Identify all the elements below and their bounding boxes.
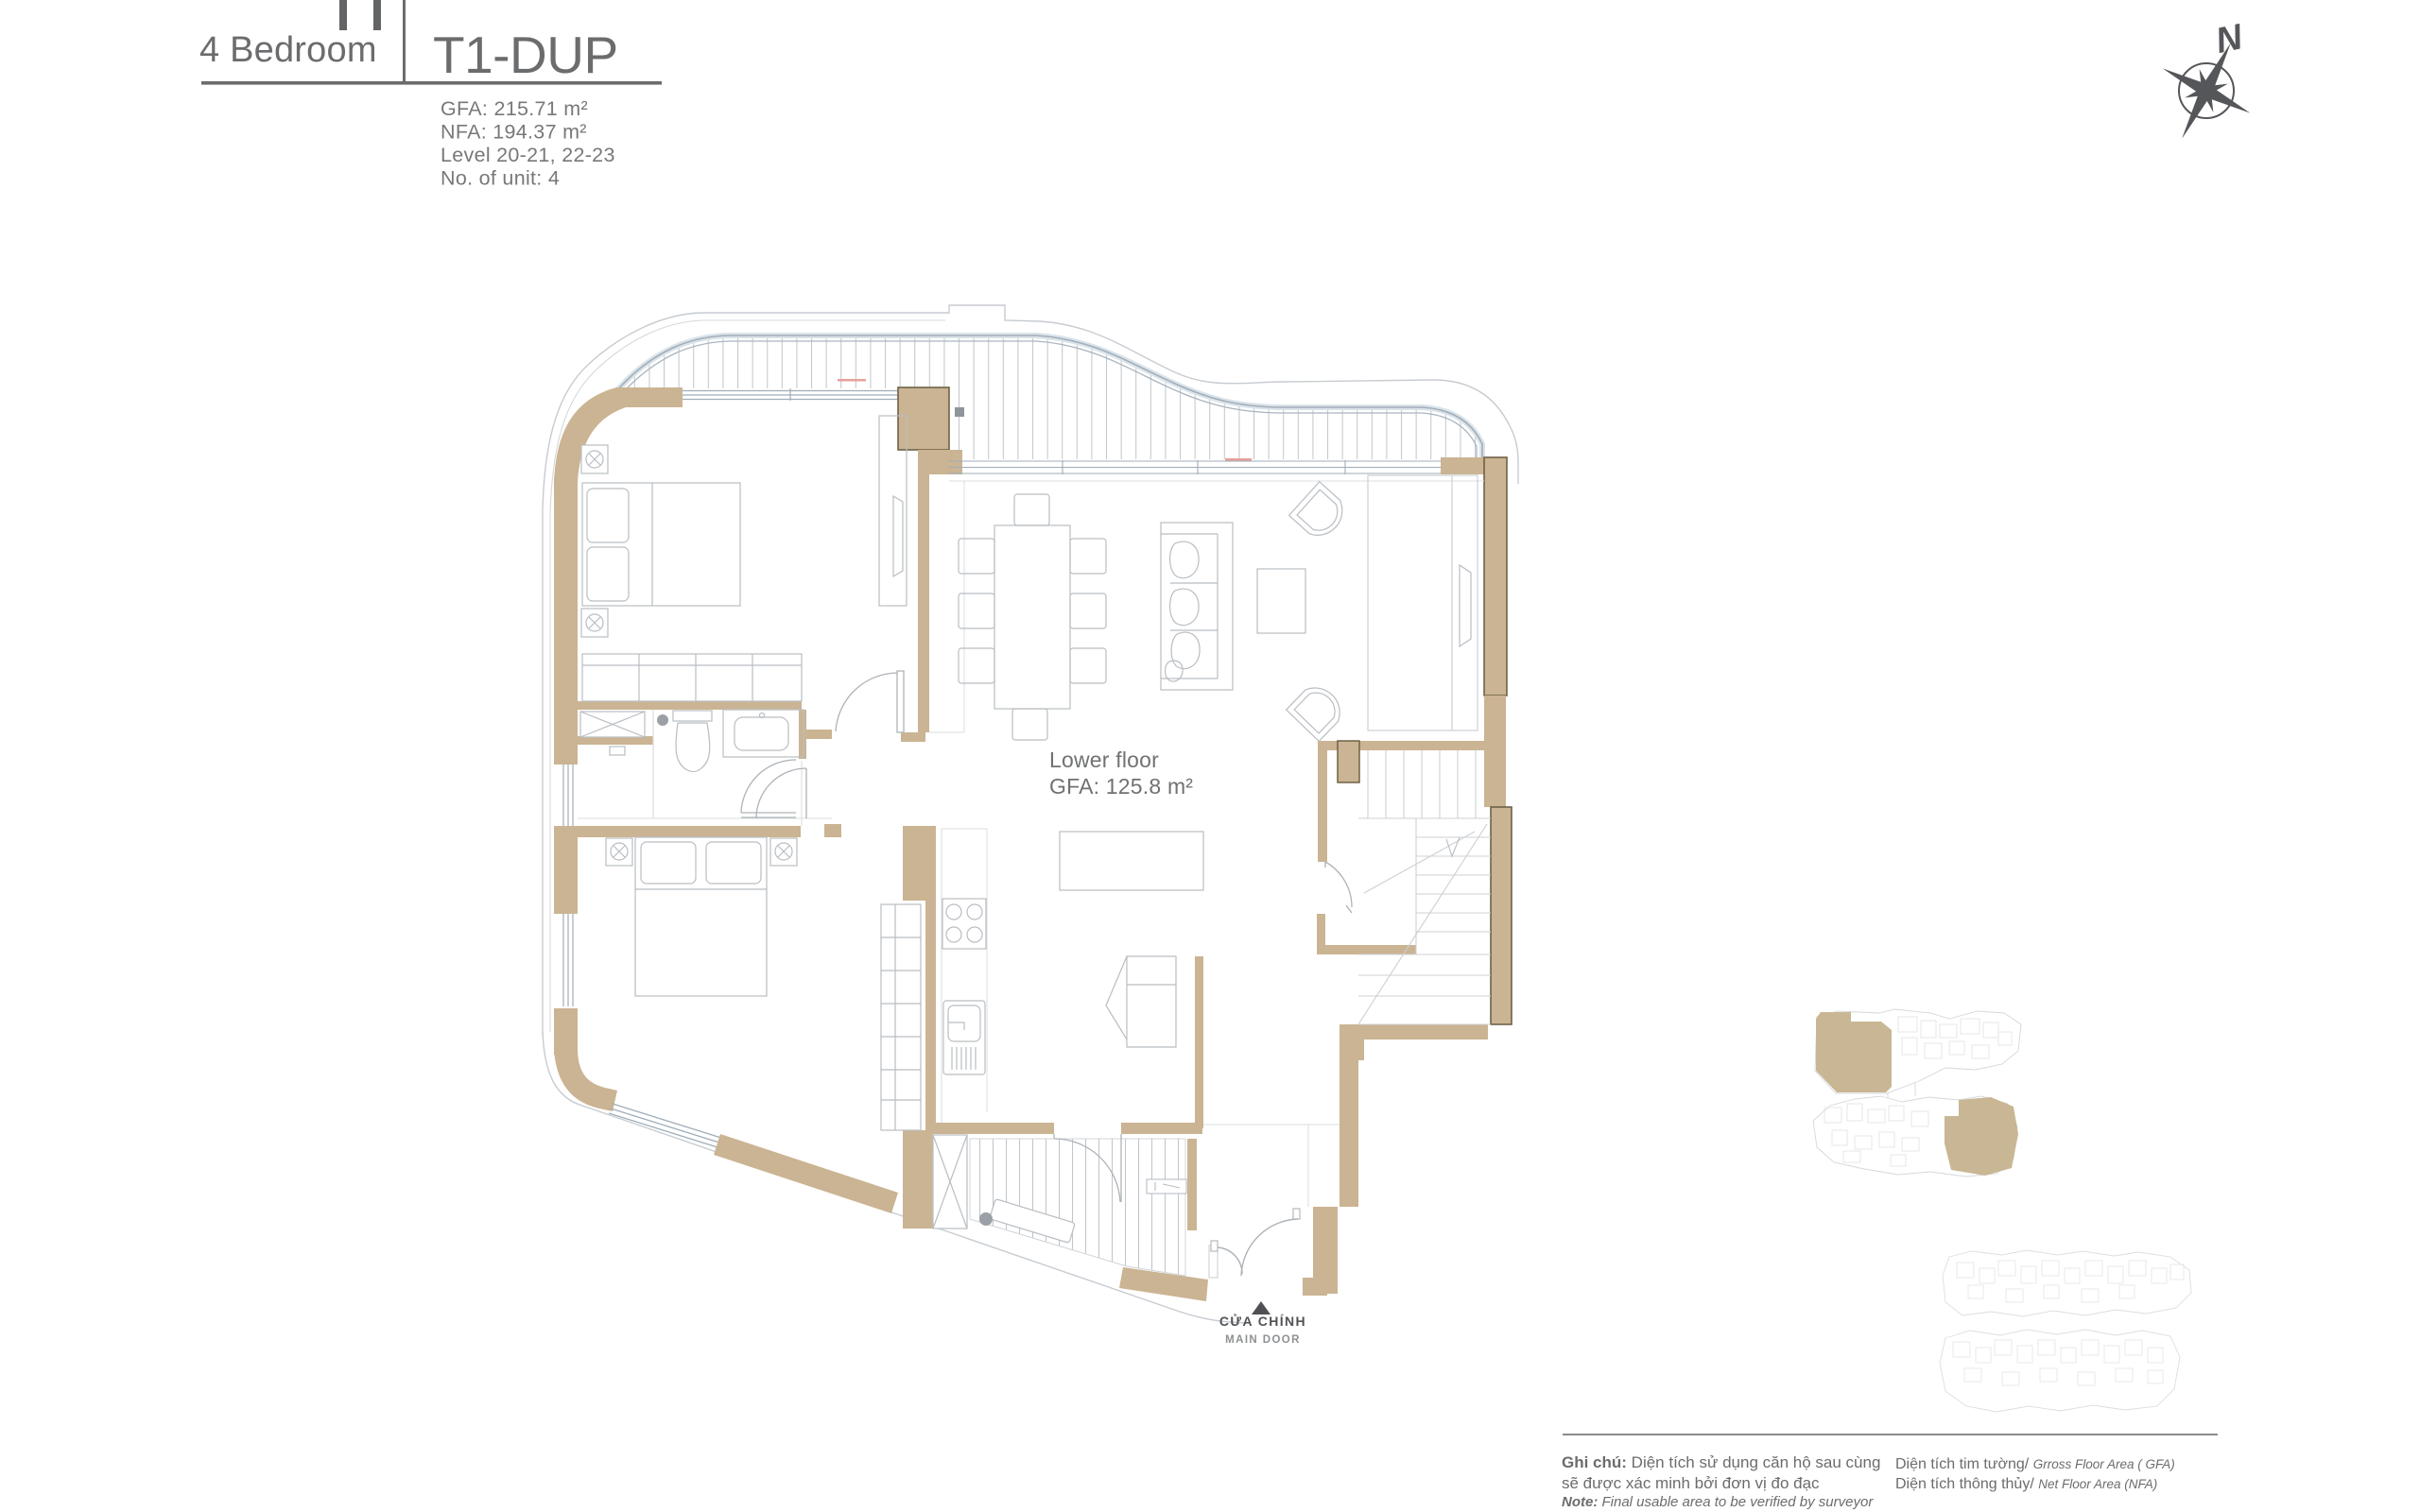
svg-text:GFA: 215.71 m²: GFA: 215.71 m² [441, 97, 588, 120]
svg-text:GFA: 125.8 m²: GFA: 125.8 m² [1049, 774, 1193, 799]
svg-text:Diện tích thông thủy/ Net Floo: Diện tích thông thủy/ Net Floor Area (NF… [1895, 1476, 2157, 1492]
svg-text:Level 20-21, 22-23: Level 20-21, 22-23 [441, 144, 615, 166]
svg-text:4 Bedroom: 4 Bedroom [199, 30, 377, 70]
svg-text:T1-DUP: T1-DUP [433, 26, 618, 84]
svg-text:NFA: 194.37 m²: NFA: 194.37 m² [441, 121, 587, 144]
svg-text:No. of unit: 4: No. of unit: 4 [441, 167, 560, 190]
svg-text:Lower floor: Lower floor [1049, 747, 1159, 772]
svg-text:Ghi chú: Diện tích sử dụng căn: Ghi chú: Diện tích sử dụng căn hộ sau cù… [1562, 1453, 1880, 1471]
svg-text:CỬA CHÍNH: CỬA CHÍNH [1219, 1313, 1306, 1329]
svg-text:Diện tích tim tường/ Grross Fl: Diện tích tim tường/ Grross Floor Area (… [1895, 1456, 2175, 1472]
svg-text:sẽ được xác minh bởi đơn vị đo: sẽ được xác minh bởi đơn vị đo đạc [1562, 1474, 1820, 1492]
svg-text:MAIN DOOR: MAIN DOOR [1225, 1334, 1301, 1346]
svg-text:Note: Final usable area to be: Note: Final usable area to be verified b… [1562, 1494, 1874, 1510]
